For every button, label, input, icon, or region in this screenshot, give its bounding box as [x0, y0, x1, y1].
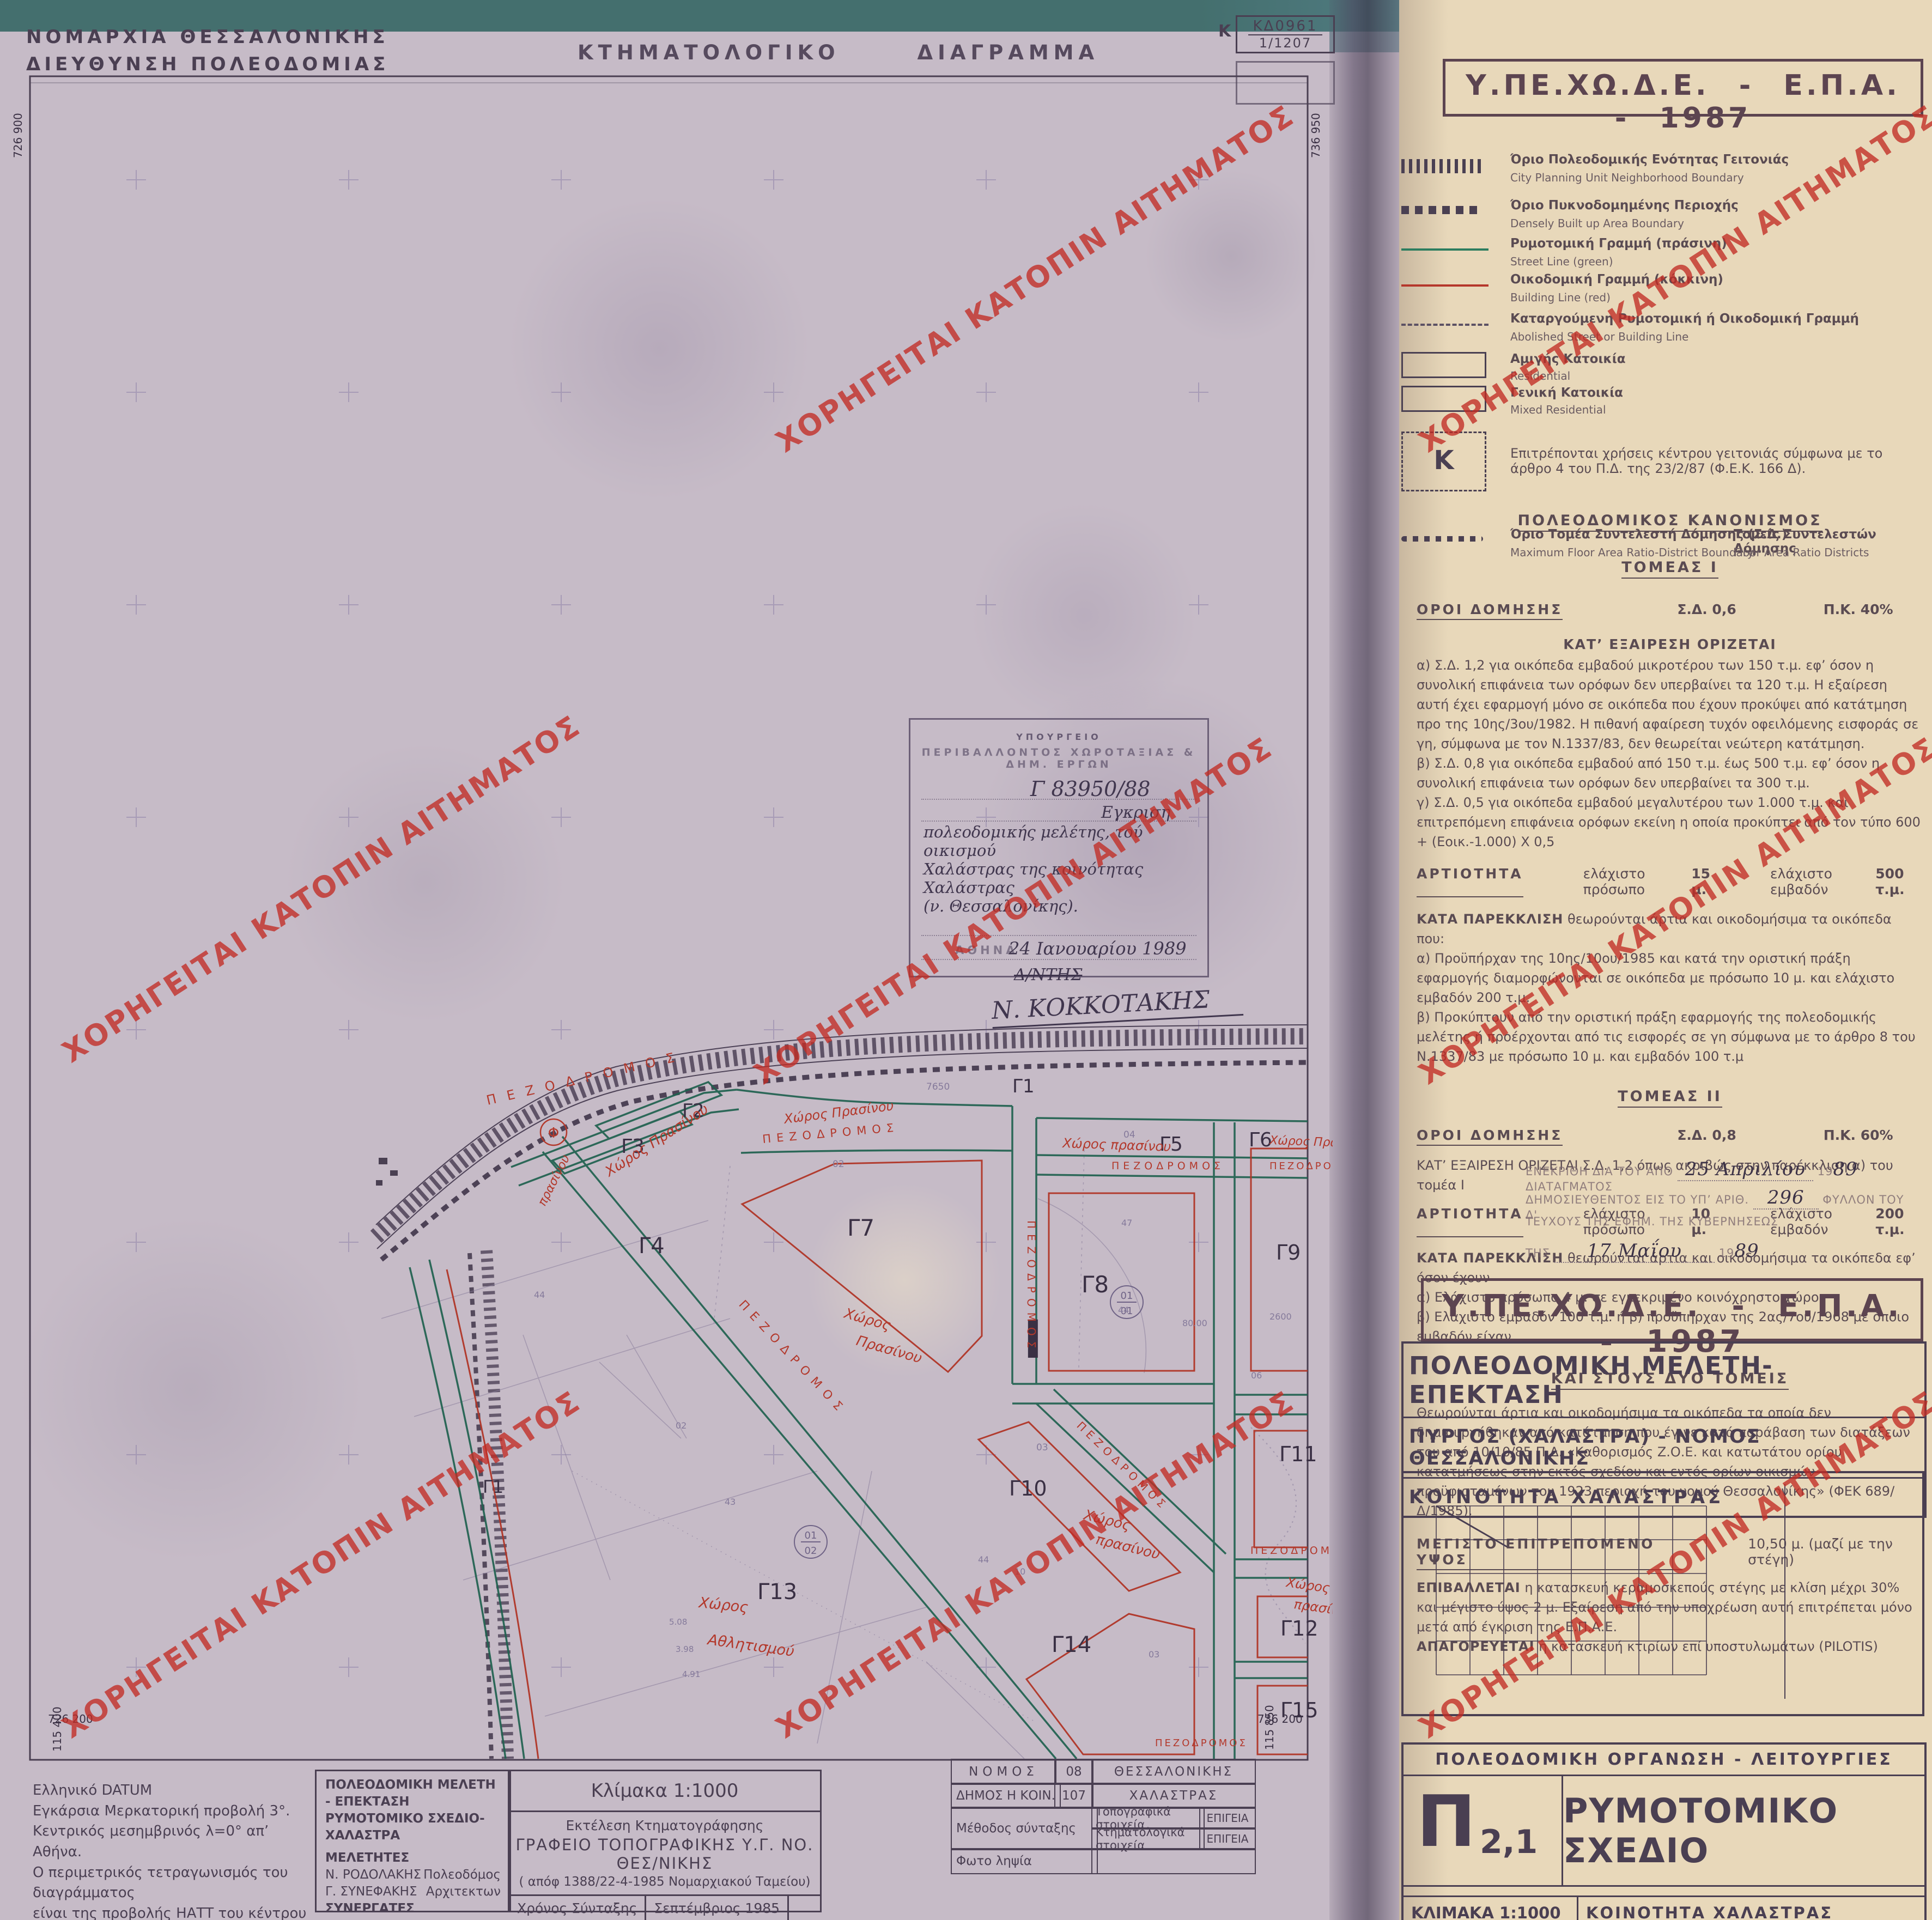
datum-l5: είναι της προβολής ΗΑΤΤ του κέντρου φύλλ…: [33, 1904, 316, 1920]
approval-l2-hand: 296: [1753, 1187, 1819, 1210]
map-label: Γ4: [639, 1234, 665, 1259]
map-label: 06: [1251, 1370, 1262, 1381]
map-label: Γ8: [1082, 1271, 1109, 1298]
map-label: Γ7: [847, 1214, 874, 1241]
oroi-label2: ΟΡΟΙ ΔΟΜΗΣΗΣ: [1417, 1127, 1563, 1146]
map-label: 736 950: [1309, 113, 1322, 158]
s1-pk: Π.Κ. 40%: [1824, 601, 1893, 620]
legend-sublabel: Densely Built up Area Boundary: [1510, 217, 1684, 230]
topo-value: ΕΠΙΓΕΙΑ: [1199, 1807, 1256, 1830]
dense-area-symbol: [1401, 206, 1483, 214]
photo-value: [1091, 1848, 1256, 1874]
datum-l4: Ο περιμετρικός τετραγωνισμός του διαγράμ…: [33, 1863, 316, 1904]
map-label: 43: [725, 1497, 736, 1507]
map-label: Χώρος πρασίνου: [1061, 1135, 1171, 1155]
oroi-label: ΟΡΟΙ ΔΟΜΗΣΗΣ: [1417, 601, 1563, 620]
map-label: ΠΕΖΟΔΡΟΜΟΣ: [1269, 1160, 1333, 1172]
map-label: ΠΕΖΟΔΡΟΜΟΣ: [1111, 1160, 1224, 1172]
sector1-heading: ΤΟΜΕΑΣ Ι: [1621, 559, 1718, 579]
legend-sublabel: Mixed Residential: [1510, 403, 1606, 416]
survey-block: Κλίμακα 1:1000 Εκτέλεση Κτηματογράφησης …: [508, 1770, 822, 1912]
survey-line2: ΓΡΑΦΕΙΟ ΤΟΠΟΓΡΑΦΙΚΗΣ Υ.Γ. ΝΟ. ΘΕΣ/ΝΙΚΗΣ: [515, 1836, 815, 1873]
sheet-code-number: 2,1: [1480, 1823, 1538, 1861]
survey-time-label: Χρόνος Σύνταξης: [509, 1896, 646, 1920]
sheet-scale: ΚΛΙΜΑΚΑ 1:1000: [1404, 1897, 1578, 1920]
approval-l4-year-printed: 19: [1719, 1247, 1735, 1260]
map-label: 3.98: [676, 1644, 694, 1654]
credits-title1: ΠΟΛΕΟΔΟΜΙΚΗ ΜΕΛΕΤΗ - ΕΠΕΚΤΑΣΗ: [317, 1771, 509, 1810]
kp1-a: α) Προϋπήρχαν της 10ης/10ου/1985 και κατ…: [1417, 949, 1923, 1007]
map-label: ΠΕΖΟΔΡΟΜΟΣ: [762, 1121, 900, 1146]
method-label: Μέθοδος σύνταξης: [951, 1807, 1098, 1850]
k-note: Επιτρέπονται χρήσεις κέντρου γειτονιάς σ…: [1510, 446, 1913, 476]
legend-sublabel: City Planning Unit Neighborhood Boundary: [1510, 171, 1744, 184]
phi-mark: Φ: [540, 1119, 567, 1145]
map-label: 03: [1149, 1649, 1159, 1660]
credit-name: Ν. ΡΟΔΟΛΑΚΗΣ: [325, 1867, 421, 1883]
ktima-value: ΕΠΙΓΕΙΑ: [1199, 1827, 1256, 1850]
survey-line1: Εκτέλεση Κτηματογράφησης: [515, 1818, 815, 1833]
map-label: 44: [1118, 1305, 1129, 1315]
map-label: Γ13: [757, 1579, 797, 1605]
approval-l4-pre: ΤΗΣ: [1526, 1247, 1550, 1260]
unit-boundary-symbol: [1401, 159, 1483, 173]
approval-l3: ΤΕΥΧΟΥΣ ΤΗΣ ΕΦΗΜ. ΤΗΣ ΚΥΒΕΡΝΗΣΕΩΣ: [1526, 1215, 1918, 1240]
dimos-code: 107: [1054, 1783, 1093, 1809]
nomos-code: 08: [1054, 1759, 1093, 1785]
credit-role: Αρχιτεκτων: [426, 1883, 501, 1900]
credit-role: Πολεοδόμος: [423, 1867, 501, 1883]
map-label: Χώρος Πρασίνου: [602, 1101, 712, 1181]
map-label: Πρασίνου: [854, 1333, 924, 1367]
residential-symbol: [1401, 352, 1486, 378]
s2-pk: Π.Κ. 60%: [1824, 1127, 1893, 1146]
map-label: Γ1: [483, 1477, 503, 1497]
survey-line3: ( απόφ 1388/22-4-1985 Νομαρχιακού Ταμείο…: [515, 1875, 815, 1889]
map-label: 02: [833, 1159, 845, 1170]
survey-time-value: Σεπτέμβριος 1985: [646, 1896, 789, 1920]
map-label: Γ6: [1249, 1129, 1272, 1151]
block-number-circle: 0102: [794, 1526, 827, 1558]
map-label: 2600: [1269, 1311, 1292, 1322]
approval-l1-pre: ΕΝΕΚΡΙΘΗ ΔΙΑ ΤΟΥ ΑΠΟ: [1526, 1165, 1673, 1178]
photo-label: Φωτο ληψία: [951, 1848, 1098, 1874]
sheet-community: ΚΟΙΝΟΤΗΤΑ ΧΑΛΑΣΤΡΑΣ: [1578, 1897, 1924, 1920]
approval-l4-hand: 17 Μαΐου: [1554, 1240, 1715, 1263]
building-line-symbol: [1401, 284, 1489, 287]
map-label: 4.91: [682, 1669, 700, 1679]
sheet-id-block: ΠΟΛΕΟΔΟΜΙΚΗ ΟΡΓΑΝΩΣΗ - ΛΕΙΤΟΥΡΓΙΕΣ Π 2,1…: [1401, 1742, 1927, 1920]
datum-l1: Ελληνικό DATUM: [33, 1781, 316, 1801]
datum-l3: Κεντρικός μεσημβρινός λ=0° απ’ Αθήνα.: [33, 1821, 316, 1862]
approval-l4-year-hand: 89: [1734, 1240, 1759, 1262]
stamp-protocol: Γ 83950/88: [1030, 777, 1151, 801]
credits-block: ΠΟΛΕΟΔΟΜΙΚΗ ΜΕΛΕΤΗ - ΕΠΕΚΤΑΣΗ ΡΥΜΟΤΟΜΙΚΟ…: [315, 1770, 511, 1912]
sheet-title: ΡΥΜΟΤΟΜΙΚΟ ΣΧΕΔΙΟ: [1563, 1776, 1924, 1885]
map-label: Γ9: [1276, 1241, 1301, 1265]
map-label: Γ10: [1009, 1477, 1047, 1500]
svg-text:Φ: Φ: [548, 1125, 559, 1141]
nomos-label: ΝΟΜΟΣ: [951, 1759, 1056, 1785]
legend-label: Όριο Πυκνοδομημένης Περιοχής: [1510, 198, 1739, 212]
credit-name: Ε. ΠΑΡΑΣΚΕΥΟΠΟΥΛΟΥ: [325, 1917, 454, 1920]
exairesi-heading: ΚΑΤ’ ΕΞΑΙΡΕΣΗ ΟΡΙΖΕΤΑΙ: [1417, 636, 1923, 652]
stamp-date: 24 Ιανουαρίου 1989: [1008, 938, 1187, 959]
credit-name: Γ. ΣΥΝΕΦΑΚΗΣ: [325, 1883, 417, 1900]
approval-l2-pre: ΔΗΜΟΣΙΕΥΘΕΝΤΟΣ ΕΙΣ ΤΟ ΥΠ’ ΑΡΙΘ.: [1526, 1193, 1749, 1206]
epa-box-top: Υ.ΠΕ.ΧΩ.Δ.Ε. - Ε.Π.Α. - 1987: [1443, 59, 1923, 117]
prosopo-label: ελάχιστο πρόσωπο: [1583, 866, 1682, 897]
street-line-symbol: [1401, 248, 1489, 251]
legend-label: Όριο Πολεοδομικής Ενότητας Γειτονιάς: [1510, 153, 1789, 167]
approval-l1-year-hand: 89: [1833, 1158, 1857, 1180]
datum-note: Ελληνικό DATUM Εγκάρσια Μερκατορική προβ…: [33, 1781, 316, 1920]
approval-l1-hand: 25 Απριλίου: [1678, 1158, 1813, 1181]
approval-l1-year-printed: 19: [1818, 1165, 1833, 1178]
s2-sd: Σ.Δ. 0,8: [1677, 1127, 1736, 1146]
map-label: Γ1: [1012, 1076, 1035, 1097]
regulations-heading: ΠΟΛΕΟΔΟΜΙΚΟΣ ΚΑΝΟΝΙΣΜΟΣ: [1517, 512, 1822, 532]
project-line1: ΠΟΛΕΟΔΟΜΙΚΗ ΜΕΛΕΤΗ-ΕΠΕΚΤΑΣΗ: [1404, 1344, 1924, 1418]
map-label: 44: [978, 1554, 989, 1565]
map-label: Χώρος: [841, 1305, 892, 1334]
svg-text:02: 02: [805, 1545, 817, 1557]
stamp-line2: ΠΕΡΙΒΑΛΛΟΝΤΟΣ ΧΩΡΟΤΑΞΙΑΣ & ΔΗΜ. ΕΡΓΩΝ: [910, 746, 1207, 770]
map-label: 80.00: [1182, 1318, 1207, 1328]
dimos-label: ΔΗΜΟΣ Η ΚΟΙΝ.: [951, 1783, 1061, 1809]
s1-par-a: α) Σ.Δ. 1,2 για οικόπεδα εμβαδού μικροτέ…: [1417, 655, 1923, 754]
legend-label: Καταργούμενη Ρυμοτομική ή Οικοδομική Γρα…: [1510, 312, 1859, 326]
kp1-label: ΚΑΤΑ ΠΑΡΕΚΚΛΙΣΗ: [1417, 912, 1563, 927]
admin-table: ΝΟΜΟΣ 08 ΘΕΣΣΑΛΟΝΙΚΗΣ ΔΗΜΟΣ Η ΚΟΙΝ. 107 …: [951, 1759, 1256, 1873]
datum-l2: Εγκάρσια Μερκατορική προβολή 3°.: [33, 1801, 316, 1822]
stamp-role: Δ/ΝΤΗΣ: [1014, 965, 1082, 985]
sheet-block-header: ΠΟΛΕΟΔΟΜΙΚΗ ΟΡΓΑΝΩΣΗ - ΛΕΙΤΟΥΡΓΙΕΣ: [1404, 1745, 1924, 1776]
sector2-heading: ΤΟΜΕΑΣ ΙΙ: [1618, 1088, 1722, 1108]
legend-sublabel: Street Line (green): [1510, 255, 1613, 268]
sheet-code-cell: Π 2,1: [1404, 1776, 1563, 1885]
scanned-map-sheet: ΝΟΜΑΡΧΙΑ ΘΕΣΣΑΛΟΝΙΚΗΣ ΔΙΕΥΘΥΝΣΗ ΠΟΛΕΟΔΟΜ…: [0, 0, 1932, 1920]
map-label: 02: [676, 1420, 686, 1431]
map-label: ΠΕΖΟΔΡΟΜΟΣ: [1155, 1737, 1248, 1749]
abolished-line-symbol: [1401, 324, 1489, 326]
svg-text:01: 01: [805, 1530, 817, 1541]
map-label: 726 900: [11, 113, 25, 158]
nomos-name: ΘΕΣΣΑΛΟΝΙΚΗΣ: [1091, 1759, 1256, 1785]
credits-group1: ΜΕΛΕΤΗΤΕΣ: [317, 1844, 509, 1867]
sheet-code-letter: Π: [1417, 1786, 1476, 1857]
s1-emvadon: 500 τ.μ.: [1875, 866, 1923, 897]
artiotita-label2: ΑΡΤΙΟΤΗΤΑ: [1417, 1206, 1523, 1237]
legend-sublabel: Building Line (red): [1510, 291, 1611, 304]
map-label: 44: [534, 1290, 545, 1300]
map-label: ΠΕΖΟΔΡΟΜΟΣ: [485, 1048, 686, 1108]
map-label: Αθλητισμού: [706, 1631, 795, 1660]
map-label: Χώρος: [1284, 1575, 1331, 1596]
artiotita-label: ΑΡΤΙΟΤΗΤΑ: [1417, 866, 1523, 897]
approval-block: ΕΝΕΚΡΙΘΗ ΔΙΑ ΤΟΥ ΑΠΟ 25 Απριλίου 1989 ΔΙ…: [1526, 1158, 1918, 1262]
map-label: Χώρος: [697, 1594, 749, 1617]
map-label: ΠΕΖΟΔΡΟΜΟΣ: [1025, 1220, 1038, 1353]
map-label: 5.08: [669, 1617, 687, 1627]
map-label: 7650: [926, 1081, 950, 1092]
credits-title2: ΡΥΜΟΤΟΜΙΚΟ ΣΧΕΔΙΟ- ΧΑΛΑΣΤΡΑ: [317, 1810, 509, 1844]
map-label: 04: [1123, 1129, 1135, 1140]
credits-group2: ΣΥΝΕΡΓΑΤΕΣ: [317, 1900, 509, 1917]
map-label: 115 850: [1263, 1705, 1276, 1750]
svg-text:01: 01: [1121, 1290, 1133, 1302]
ktima-label: Κτηματολογικά στοιχεία: [1091, 1827, 1205, 1850]
survey-scale: Κλίμακα 1:1000: [509, 1771, 820, 1812]
stamp-line1: ΥΠΟΥΡΓΕΙΟ: [910, 732, 1207, 742]
fold-tape-strip: [1329, 0, 1399, 1920]
map-label: 03: [1036, 1442, 1048, 1453]
map-label: ΠΕΖΟΔΡΟΜΟΣ: [1250, 1545, 1333, 1557]
map-label: Γ11: [1279, 1442, 1317, 1466]
epa-box-bottom: Υ.ΠΕ.ΧΩ.Δ.Ε. - Ε.Π.Α. - 1987: [1421, 1278, 1923, 1341]
map-label: 47: [1121, 1218, 1132, 1228]
s1-sd: Σ.Δ. 0,6: [1677, 601, 1736, 620]
map-label: Γ12: [1280, 1617, 1319, 1640]
emvadon-label: ελάχιστο εμβαδόν: [1770, 866, 1866, 897]
map-label: Γ14: [1052, 1632, 1091, 1657]
